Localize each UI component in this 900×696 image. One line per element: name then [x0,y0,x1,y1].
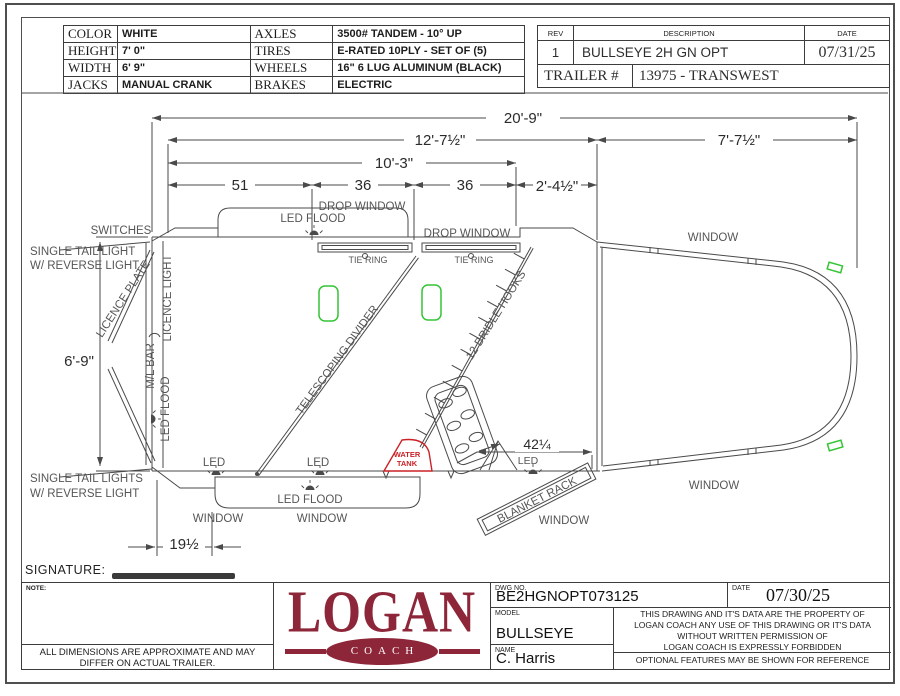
table-row: HEIGHT 7' 0" TIRES E-RATED 10PLY - SET O… [64,43,525,60]
spec-label: HEIGHT [64,43,118,60]
table-row: WIDTH 6' 9" WHEELS 16" 6 LUG ALUMINUM (B… [64,60,525,77]
spec-label: WHEELS [250,60,333,77]
spec-table: COLOR WHITE AXLES 3500# TANDEM - 10° UP … [63,25,525,94]
spec-value: 6' 9" [117,60,250,77]
rev-header: REV [538,29,573,38]
legal-line-2: LOGAN COACH ANY USE OF THIS DRAWING OR I… [614,620,891,631]
optional-features-note: OPTIONAL FEATURES MAY BE SHOWN FOR REFER… [614,653,891,669]
title-block: NOTE: ALL DIMENSIONS ARE APPROXIMATE AND… [21,582,890,670]
date-label: DATE [732,585,750,592]
spec-label: JACKS [64,77,118,94]
rev-description: BULLSEYE 2H GN OPT [574,41,805,64]
spec-value: 3500# TANDEM - 10° UP [333,26,525,43]
table-row: JACKS MANUAL CRANK BRAKES ELECTRIC [64,77,525,94]
note-label: NOTE: [26,585,46,592]
logo-cell: LOGAN COACH [274,583,491,669]
model-cell: MODEL BULLSEYE [491,608,614,645]
trailer-drawing-page: COLOR WHITE AXLES 3500# TANDEM - 10° UP … [0,0,900,696]
logo-bar-right [439,649,480,654]
name-value: C. Harris [496,650,555,667]
revision-header-row: REV DESCRIPTION DATE [538,26,889,41]
spec-value: ELECTRIC [333,77,525,94]
legal-line-3: WITHOUT WRITTEN PERMISSION OF [614,631,891,642]
spec-label: COLOR [64,26,118,43]
spec-value: E-RATED 10PLY - SET OF (5) [333,43,525,60]
rev-number: 1 [538,41,574,64]
spec-value: MANUAL CRANK [117,77,250,94]
revision-data-row: 1 BULLSEYE 2H GN OPT 07/31/25 [538,41,889,65]
logo-coach-ellipse: COACH [326,638,438,665]
spec-label: AXLES [250,26,333,43]
disclaimer: ALL DIMENSIONS ARE APPROXIMATE AND MAY D… [22,644,273,669]
spec-label: TIRES [250,43,333,60]
dwg-number: BE2HGNOPT073125 [496,588,639,605]
model-value: BULLSEYE [496,625,574,642]
rev-date: 07/31/25 [805,41,889,64]
logo-bar-left [285,649,326,654]
signature-line [112,573,235,579]
signature-label: SIGNATURE: [25,563,105,577]
spec-label: WIDTH [64,60,118,77]
disclaimer-line-2: DIFFER ON ACTUAL TRAILER. [22,658,273,669]
legal-line-1: THIS DRAWING AND IT'S DATA ARE THE PROPE… [614,609,891,620]
spec-value: 7' 0" [117,43,250,60]
legal-notice: THIS DRAWING AND IT'S DATA ARE THE PROPE… [614,608,891,653]
date-header: DATE [805,29,889,38]
spec-value: 16" 6 LUG ALUMINUM (BLACK) [333,60,525,77]
disclaimer-line-1: ALL DIMENSIONS ARE APPROXIMATE AND MAY [22,647,273,658]
spec-value: WHITE [117,26,250,43]
dwg-number-cell: DWG NO. BE2HGNOPT073125 [491,583,728,608]
description-header: DESCRIPTION [574,29,804,38]
trailer-number-label: TRAILER # [538,65,633,87]
revision-table: REV DESCRIPTION DATE 1 BULLSEYE 2H GN OP… [537,25,890,88]
table-row: COLOR WHITE AXLES 3500# TANDEM - 10° UP [64,26,525,43]
date-value: 07/30/25 [766,585,830,606]
trailer-number-row: TRAILER # 13975 - TRANSWEST [538,65,889,87]
trailer-number-value: 13975 - TRANSWEST [633,65,889,87]
model-label: MODEL [495,610,520,617]
note-cell: NOTE: ALL DIMENSIONS ARE APPROXIMATE AND… [22,583,274,669]
spec-label: BRAKES [250,77,333,94]
date-cell: DATE 07/30/25 [728,583,891,608]
legal-line-4: LOGAN COACH IS EXPRESSLY FORBIDDEN [614,642,891,653]
logan-logo: LOGAN [274,583,490,645]
name-cell: NAME C. Harris [491,645,614,669]
